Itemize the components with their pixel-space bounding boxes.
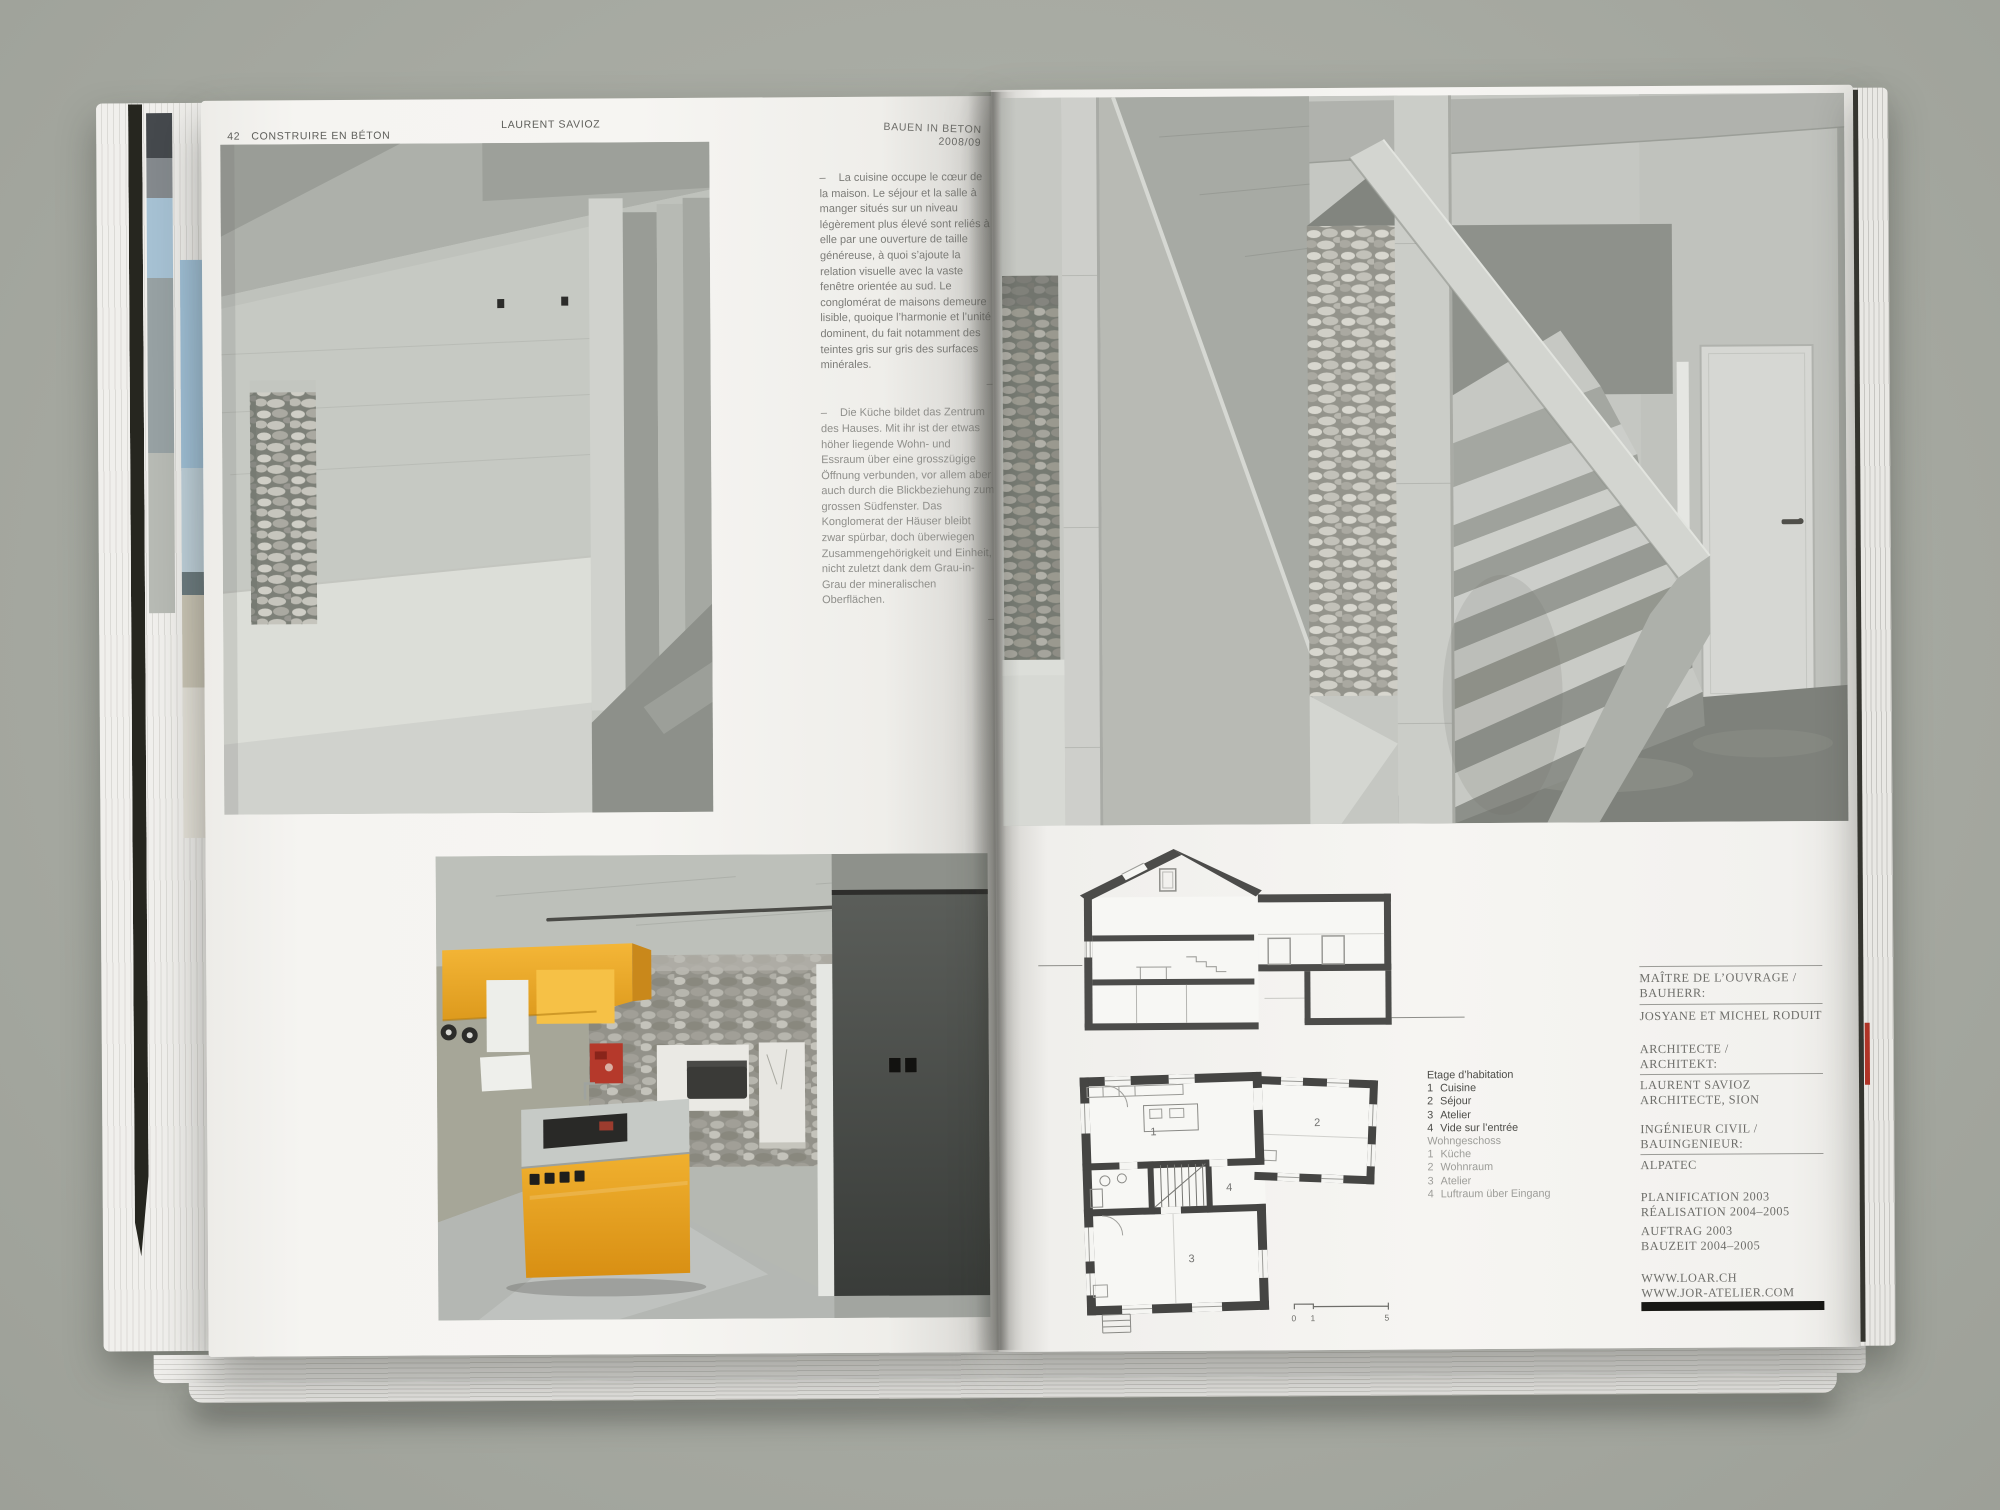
paragraph-end-dash: –	[822, 612, 994, 629]
plan-legend: Etage d’habitation 1Cuisine 2Séjour 3Ate…	[1427, 1068, 1633, 1201]
paragraph-dash: –	[819, 172, 825, 184]
credit-value-client: JOSYANE ET MICHEL RODUIT	[1640, 1008, 1823, 1024]
website-jor-atelier: WWW.JOR-ATELIER.COM	[1641, 1285, 1794, 1300]
window-opening-tall	[759, 1042, 806, 1148]
legend-item: 2Wohnraum	[1427, 1161, 1632, 1175]
credit-value-architect: LAURENT SAVIOZARCHITECTE, SION	[1640, 1077, 1823, 1107]
section-drawing	[1036, 837, 1477, 1052]
legend-item: 1Küche	[1427, 1147, 1632, 1161]
plan-room-4: 4	[1226, 1182, 1233, 1194]
paragraph-end-dash: –	[821, 377, 993, 394]
stone-wall-lintel	[250, 380, 316, 392]
legend-item: 2Séjour	[1427, 1095, 1632, 1109]
schedule-fr: PLANIFICATION 2003RÉALISATION 2004–2005	[1641, 1189, 1824, 1219]
light-switch	[905, 1058, 917, 1073]
credit-label-engineer: INGÉNIEUR CIVIL /BAUINGENIEUR:	[1640, 1121, 1823, 1151]
rubble-stone-wall	[250, 392, 317, 624]
floor-plan-graphic: 1 2 3 4 0 1 5	[1060, 1053, 1424, 1349]
legend-item: 3Atelier	[1427, 1108, 1632, 1122]
legend-item: 4Luftraum über Eingang	[1428, 1187, 1633, 1201]
svg-text:0: 0	[1291, 1313, 1296, 1323]
svg-text:1: 1	[1310, 1313, 1315, 1323]
left-page: 42 CONSTRUIRE EN BÉTON 2008/09 LAURENT S…	[201, 96, 999, 1357]
paragraph-dash: –	[821, 407, 827, 419]
floor-plan-drawing: 1 2 3 4 0 1 5	[1060, 1053, 1424, 1349]
legend-item: 4Vide sur l’entrée	[1427, 1121, 1632, 1135]
black-end-bar	[1641, 1301, 1824, 1311]
photo-kitchen-yellow	[436, 853, 991, 1320]
fore-edge-photo-fragment-top	[146, 113, 175, 613]
legend-title-de: Wohngeschoss	[1427, 1134, 1632, 1148]
photo-kitchen-graphic	[436, 853, 991, 1320]
stone-wall-left-opening	[1002, 276, 1060, 668]
white-paper-sheet	[480, 1055, 532, 1092]
legend-title-fr: Etage d’habitation	[1427, 1068, 1632, 1082]
website-loar: WWW.LOAR.CH	[1641, 1271, 1737, 1286]
author-name: LAURENT SAVIOZ	[501, 118, 600, 132]
project-credits: MAÎTRE DE L’OUVRAGE /BAUHERR: JOSYANE ET…	[1639, 965, 1822, 966]
credit-label-architect: ARCHITECTE /ARCHITEKT:	[1640, 1041, 1823, 1071]
plan-room-1: 1	[1150, 1126, 1157, 1138]
fore-edge-red-fragment	[1865, 1023, 1870, 1085]
red-poster	[590, 1043, 623, 1083]
credit-value-engineer: ALPATEC	[1640, 1157, 1823, 1173]
svg-text:5: 5	[1384, 1313, 1389, 1323]
light-switch	[497, 299, 504, 308]
plan-room-2: 2	[1314, 1117, 1321, 1129]
credit-label-client: MAÎTRE DE L’OUVRAGE /BAUHERR:	[1639, 970, 1822, 1000]
intro-paragraph-de: –Die Küche bildet das Zentrum des Hauses…	[821, 405, 996, 609]
right-page: 1 2 3 4 0 1 5 Etage	[991, 85, 1861, 1352]
plan-room-3: 3	[1188, 1253, 1195, 1265]
sofa	[687, 1067, 747, 1099]
rubble-stone-wall-bright	[1307, 226, 1398, 697]
legend-item: 3Atelier	[1428, 1174, 1633, 1188]
light-switch	[889, 1058, 901, 1073]
websites: WWW.LOAR.CH WWW.JOR-ATELIER.COM	[1641, 1270, 1824, 1300]
intro-paragraph-fr: –La cuisine occupe le cœur de la maison.…	[819, 170, 994, 374]
photo-staircase-concrete	[999, 93, 1848, 826]
light-switch	[561, 297, 568, 306]
plan-scale-bar: 0 1 5	[1291, 1303, 1389, 1324]
photographed-book-spread: 42 CONSTRUIRE EN BÉTON 2008/09 LAURENT S…	[0, 0, 2000, 1510]
legend-item: 1Cuisine	[1427, 1081, 1632, 1095]
photo-staircase-graphic	[999, 93, 1848, 826]
series-title-de: BAUEN IN BETON 2008/09	[883, 121, 982, 150]
white-column	[486, 980, 528, 1052]
schedule-de: AUFTRAG 2003BAUZEIT 2004–2005	[1641, 1223, 1824, 1253]
book: 42 CONSTRUIRE EN BÉTON 2008/09 LAURENT S…	[0, 0, 2000, 1510]
photo-interior-concrete-graphic	[220, 142, 713, 815]
photo-interior-concrete	[220, 142, 713, 815]
kitchen-island-yellow-front	[521, 1153, 690, 1278]
intro-text-column: –La cuisine occupe le cœur de la maison.…	[819, 170, 996, 639]
dark-concrete-volume	[832, 889, 990, 1296]
section-drawing-graphic	[1036, 837, 1477, 1052]
